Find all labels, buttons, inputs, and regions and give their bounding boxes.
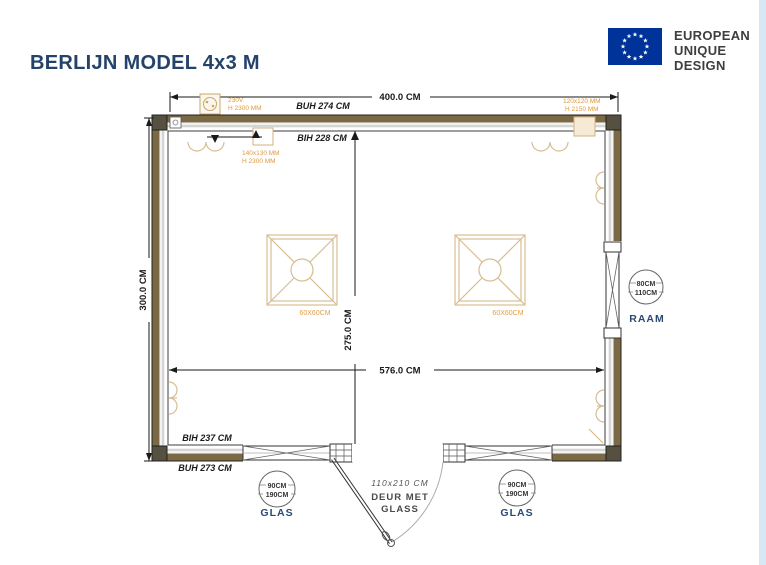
vent-left-size-label: 140x130 MM — [242, 150, 280, 157]
skylight-1-label: 60X60CM — [299, 310, 330, 317]
power-outlet-icon — [200, 94, 220, 114]
door-size-label: 110x210 CM — [371, 478, 429, 488]
window-bottom-2-size-bubble: 90CM 190CM — [498, 470, 536, 506]
window-bottom-2-size1: 90CM — [508, 482, 527, 489]
vent-left-height-label: H 2300 MM — [242, 158, 276, 165]
power-volts-label: 230V — [228, 97, 244, 104]
window-bottom-2-size2: 190CM — [506, 491, 529, 498]
vent-right-size-label: 120x120 MM — [563, 98, 601, 105]
window-right-label: RAAM — [629, 313, 665, 325]
buh-bottom-label: BUH 273 CM — [178, 463, 232, 473]
building-walls — [152, 115, 621, 461]
floor-plan-drawing: 400.0 CM 300.0 CM 275.0 CM 576.0 CM — [0, 0, 766, 565]
vent-right-box — [574, 117, 595, 136]
outer-width-label: 400.0 CM — [379, 92, 420, 103]
door-mullion-left — [330, 444, 352, 462]
outer-height-label: 300.0 CM — [138, 269, 149, 310]
buh-top-label: BUH 274 CM — [296, 101, 350, 111]
window-right — [604, 241, 622, 338]
window-bottom-2-label: GLAS — [500, 507, 533, 519]
bih-bottom-label: BIH 237 CM — [182, 433, 232, 443]
power-height-label: H 2300 MM — [228, 105, 262, 112]
door-mullion-right — [443, 444, 465, 462]
skylight-2-label: 60X60CM — [492, 310, 523, 317]
window-right-size-bubble: 80CM 110CM — [628, 270, 664, 304]
door-label-line2: GLASS — [381, 504, 419, 515]
corner-block-bottom-right — [606, 446, 621, 461]
floor-plan-page: BERLIJN MODEL 4x3 M EUROPEAN UNIQUE — [0, 0, 766, 565]
window-right-size1: 80CM — [637, 281, 656, 288]
window-bottom-1-size-bubble: 90CM 190CM — [258, 471, 296, 507]
window-bottom-1-size2: 190CM — [266, 492, 289, 499]
inner-width-label: 576.0 CM — [379, 366, 420, 377]
corner-block-bottom-left — [152, 446, 167, 461]
door-label-line1: DEUR MET — [371, 492, 429, 503]
window-bottom-1-size1: 90CM — [268, 483, 287, 490]
window-right-size2: 110CM — [635, 290, 657, 297]
vent-right-height-label: H 2150 MM — [565, 106, 599, 113]
bih-top-label: BIH 228 CM — [297, 133, 347, 143]
window-bottom-2 — [443, 444, 552, 462]
window-bottom-1 — [243, 444, 352, 462]
inner-height-label: 275.0 CM — [343, 309, 354, 350]
corner-block-top-left — [152, 115, 167, 130]
corner-block-top-right — [606, 115, 621, 130]
corner-detail-box — [170, 117, 181, 128]
window-bottom-1-label: GLAS — [260, 507, 293, 519]
